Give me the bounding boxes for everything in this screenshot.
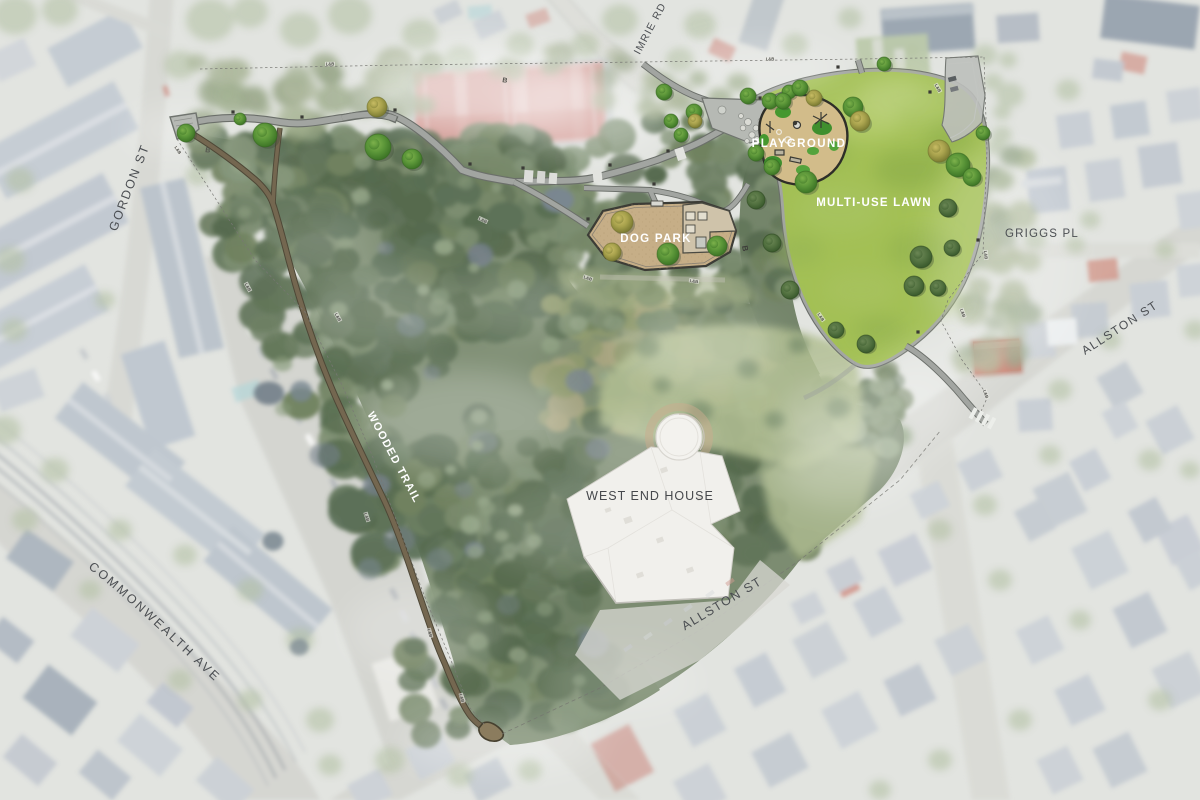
svg-text:B: B xyxy=(205,147,211,155)
svg-text:PLAYGROUND: PLAYGROUND xyxy=(752,138,847,150)
svg-text:DOG PARK: DOG PARK xyxy=(620,233,692,245)
svg-text:MULTI-USE LAWN: MULTI-USE LAWN xyxy=(816,197,932,209)
svg-text:L&B: L&B xyxy=(983,251,989,260)
svg-text:WEST END HOUSE: WEST END HOUSE xyxy=(586,489,714,503)
svg-text:GRIGGS PL: GRIGGS PL xyxy=(1005,228,1079,240)
svg-text:L&B: L&B xyxy=(326,62,335,67)
svg-text:L&B: L&B xyxy=(766,57,775,62)
